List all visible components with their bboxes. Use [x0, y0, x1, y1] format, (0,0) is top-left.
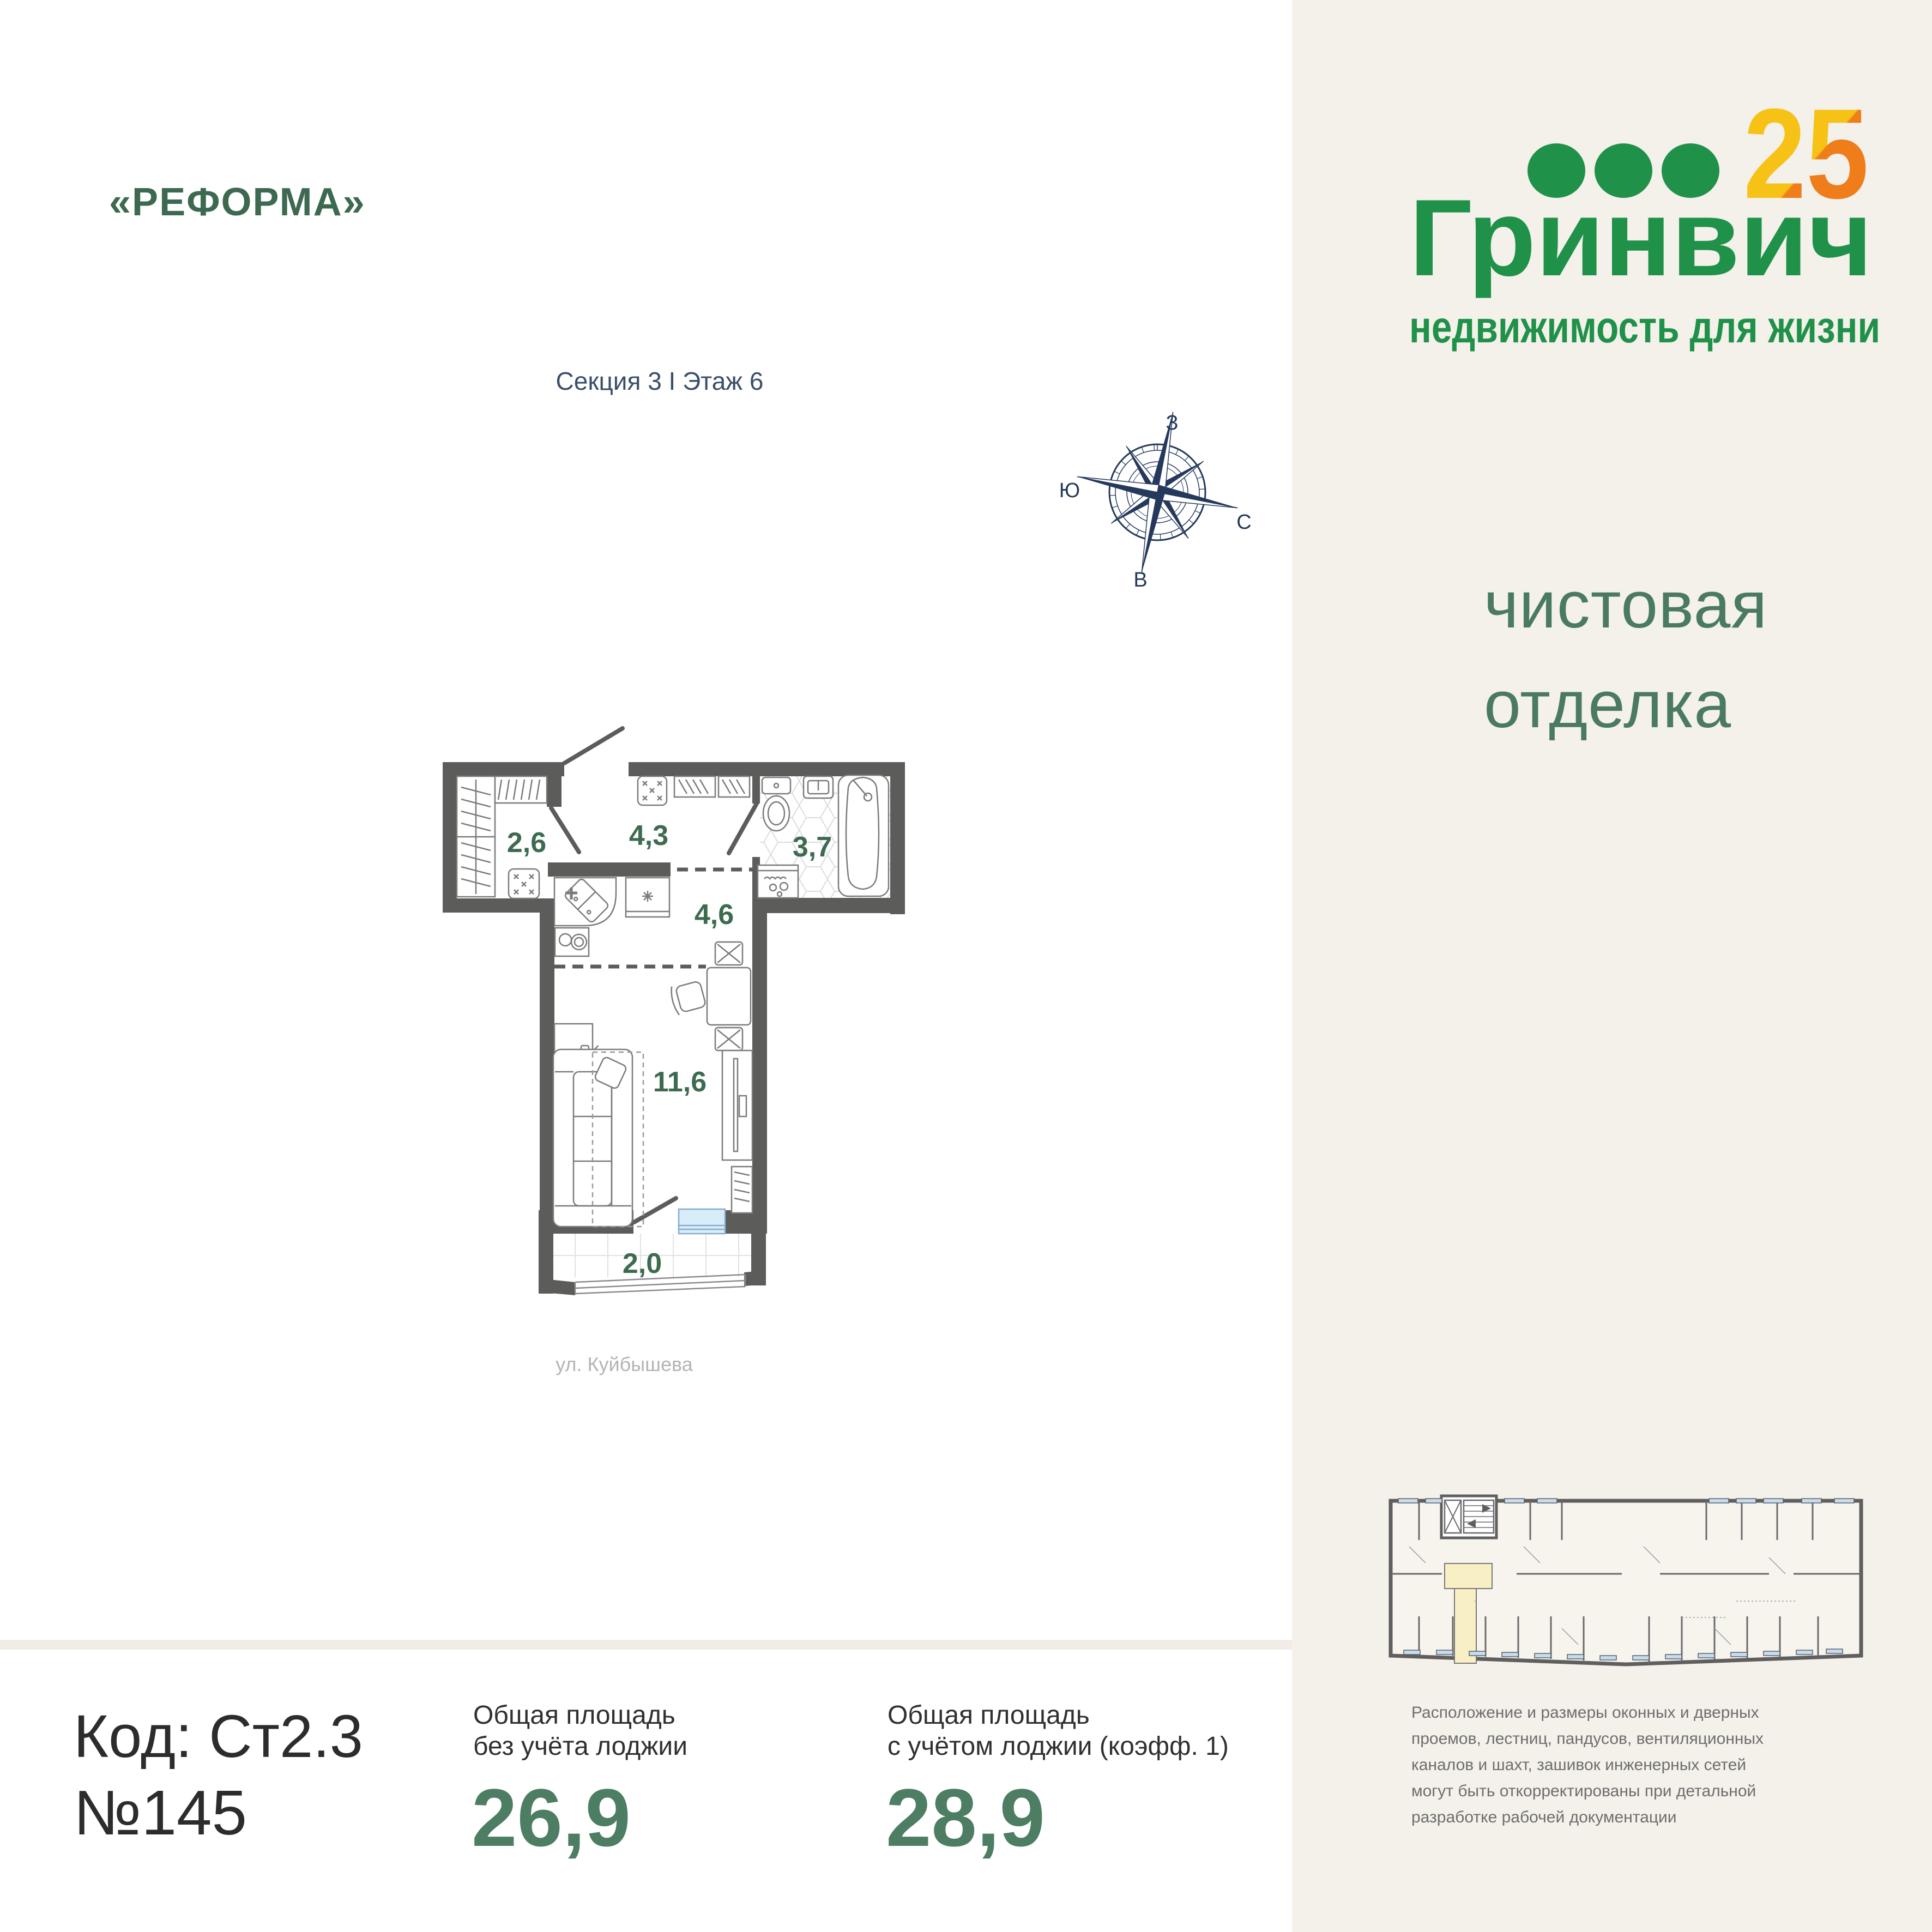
compass-north-label: С: [1236, 511, 1251, 534]
stove-icon: [555, 928, 589, 956]
area-without-loggia-value: 26,9: [472, 1771, 631, 1865]
disclaimer-text: Расположение и размеры оконных и дверных…: [1411, 1700, 1764, 1831]
section-floor-label: Секция 3 I Этаж 6: [469, 366, 850, 396]
toilet-icon: [762, 777, 790, 831]
compass-west-label: З: [1166, 412, 1179, 434]
area-bathroom: 3,7: [793, 831, 832, 863]
shelf-rack-icon: [674, 776, 750, 797]
area-with-loggia-label-line1: Общая площадь: [887, 1700, 1229, 1731]
bathtub-icon: [838, 775, 889, 896]
street-label: ул. Куйбышева: [545, 1353, 703, 1376]
sofa-icon: [553, 1049, 632, 1227]
logo-brand: Гринвич: [1409, 177, 1873, 299]
disclaimer-line: Расположение и размеры оконных и дверных: [1411, 1700, 1764, 1726]
unit-code: Код: Ст2.3: [74, 1702, 363, 1771]
stool-icon: [509, 869, 539, 898]
apartment-floor-plan: 2,6 4,3 3,7 4,6 11,6 2,0: [431, 720, 921, 1406]
compass-east-label: В: [1133, 569, 1147, 591]
unit-number: №145: [74, 1776, 247, 1849]
area-with-loggia-label-line2: с учётом лоджии (коэфф. 1): [887, 1731, 1229, 1762]
area-hallway: 2,6: [507, 827, 546, 859]
disclaimer-line: каналов и шахт, зашивок инженерных сетей: [1411, 1752, 1764, 1778]
disclaimer-line: могут быть откорректированы при детально…: [1411, 1778, 1764, 1804]
compass-icon: З С В Ю: [1058, 393, 1265, 600]
finishing-type: чистовая отделка: [1484, 555, 1767, 754]
flyer-page: «РЕФОРМА» Секция 3 I Этаж 6 25 Гринвич н…: [0, 0, 1932, 1932]
section-divider: [0, 1640, 1292, 1650]
chair-icon: [669, 979, 707, 1016]
stool-icon: [638, 776, 667, 805]
sink-icon: [804, 776, 833, 798]
washing-machine-icon: [758, 865, 798, 898]
area-kitchen: 4,6: [695, 899, 734, 931]
disclaimer-line: проемов, лестниц, пандусов, вентиляционн…: [1411, 1726, 1764, 1752]
finishing-line2: отделка: [1484, 655, 1767, 754]
compass-south-label: Ю: [1059, 479, 1080, 502]
area-with-loggia-value: 28,9: [886, 1771, 1045, 1865]
area-without-loggia-label: Общая площадь без учёта лоджии: [473, 1700, 687, 1762]
area-without-loggia-label-line2: без учёта лоджии: [473, 1731, 687, 1762]
area-kitchen-corridor: 4,3: [629, 820, 668, 852]
dining-table-icon: [707, 942, 751, 1050]
area-living: 11,6: [653, 1066, 707, 1098]
logo-tagline: недвижимость для жизни: [1409, 303, 1880, 352]
finishing-line1: чистовая: [1484, 555, 1767, 655]
building-floor-overview: [1387, 1492, 1864, 1669]
tv-unit-icon: [722, 1050, 752, 1213]
area-without-loggia-label-line1: Общая площадь: [473, 1700, 687, 1731]
kitchen-sink-icon: [554, 878, 616, 926]
disclaimer-line: разработке рабочей документации: [1411, 1804, 1764, 1831]
brand-logo: 25 Гринвич недвижимость для жизни: [1325, 82, 1903, 365]
fridge-icon: [626, 878, 669, 917]
area-balcony: 2,0: [623, 1248, 662, 1279]
area-with-loggia-label: Общая площадь с учётом лоджии (коэфф. 1): [887, 1700, 1229, 1762]
stair-core-icon: [1441, 1496, 1496, 1538]
project-title: «РЕФОРМА»: [109, 180, 366, 225]
